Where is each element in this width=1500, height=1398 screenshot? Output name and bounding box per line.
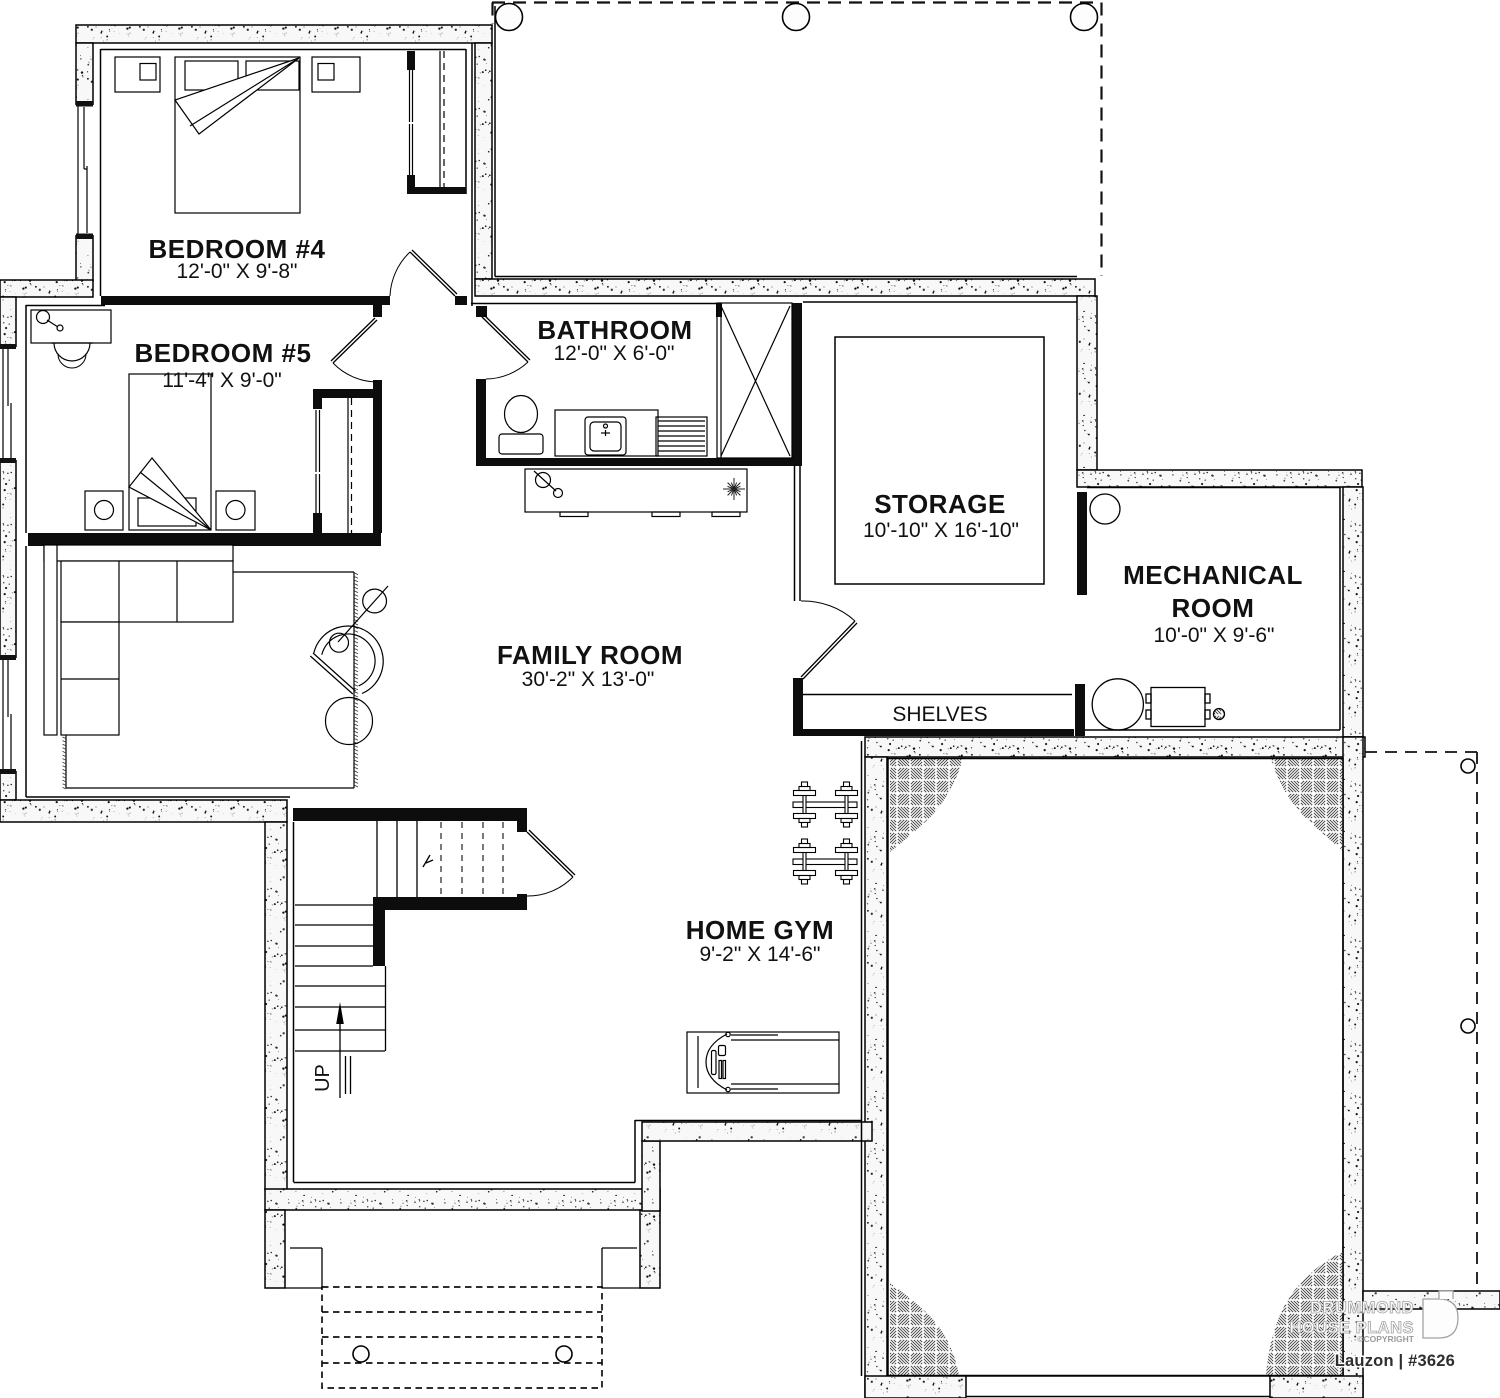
svg-text:10'-10" X 16'-10": 10'-10" X 16'-10" bbox=[863, 519, 1019, 542]
svg-text:BATHROOM: BATHROOM bbox=[537, 315, 692, 345]
svg-text:12'-0" X 9'-8": 12'-0" X 9'-8" bbox=[177, 260, 298, 283]
svg-text:10'-0" X 9'-6": 10'-0" X 9'-6" bbox=[1154, 624, 1275, 647]
svg-text:DRUMMOND: DRUMMOND bbox=[1310, 1299, 1414, 1317]
svg-text:SHELVES: SHELVES bbox=[892, 703, 987, 726]
svg-text:STORAGE: STORAGE bbox=[874, 489, 1006, 519]
svg-text:9'-2" X 14'-6": 9'-2" X 14'-6" bbox=[700, 943, 821, 966]
svg-text:11'-4" X 9'-0": 11'-4" X 9'-0" bbox=[162, 369, 281, 392]
svg-text:12'-0" X 6'-0": 12'-0" X 6'-0" bbox=[554, 342, 675, 365]
svg-text:30'-2" X 13'-0": 30'-2" X 13'-0" bbox=[522, 668, 655, 691]
svg-text:MECHANICAL: MECHANICAL bbox=[1123, 560, 1303, 590]
svg-text:Lauzon | #3626: Lauzon | #3626 bbox=[1335, 1352, 1455, 1370]
svg-text:UP: UP bbox=[312, 1064, 334, 1092]
svg-text:FAMILY ROOM: FAMILY ROOM bbox=[497, 640, 683, 670]
svg-text:HOME GYM: HOME GYM bbox=[686, 915, 834, 945]
svg-text:©COPYRIGHT: ©COPYRIGHT bbox=[1357, 1334, 1415, 1344]
svg-text:ROOM: ROOM bbox=[1172, 593, 1255, 623]
svg-text:BEDROOM #5: BEDROOM #5 bbox=[135, 338, 312, 368]
